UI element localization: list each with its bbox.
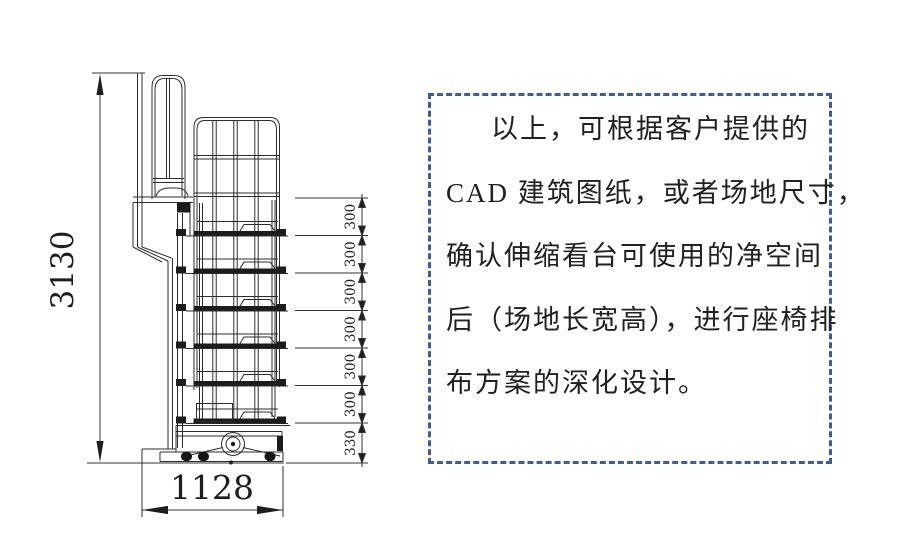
note-box: 以上，可根据客户提供的 CAD 建筑图纸，或者场地尺寸， 确认伸缩看台可使用的净…: [428, 93, 832, 464]
back-panel: [136, 73, 173, 449]
frame-columns: [178, 200, 276, 448]
note-line: 后（场地长宽高），进行座椅排: [446, 289, 817, 353]
bleacher-structure: [133, 73, 290, 465]
step-dimension-label: 300: [343, 241, 359, 267]
step-dimension-label: 300: [343, 316, 359, 342]
step-dimension-label: 300: [343, 204, 359, 230]
note-line: 布方案的深化设计。: [446, 352, 817, 416]
guard-cage: [194, 118, 280, 420]
step-dimension-label: 300: [343, 279, 359, 305]
step-dimension-labels: 300 300 300 300 300 300 330: [343, 204, 359, 456]
note-line: 以上，可根据客户提供的: [446, 98, 817, 162]
height-dimension-label: 3130: [45, 231, 81, 310]
width-dimension-label: 1128: [170, 468, 254, 507]
note-line: 确认伸缩看台可使用的净空间: [446, 225, 817, 289]
step-dimension-label: 300: [343, 354, 359, 380]
note-line: CAD 建筑图纸，或者场地尺寸，: [446, 162, 817, 226]
step-dimension-label: 300: [343, 391, 359, 417]
page: 3130 1128: [0, 0, 900, 542]
top-handrail: [152, 76, 188, 200]
base-frame: [142, 426, 290, 465]
seat-rows: [176, 222, 288, 424]
bleacher-side-view-drawing: 3130 1128: [0, 0, 420, 542]
step-dimension-label: 330: [343, 430, 359, 456]
